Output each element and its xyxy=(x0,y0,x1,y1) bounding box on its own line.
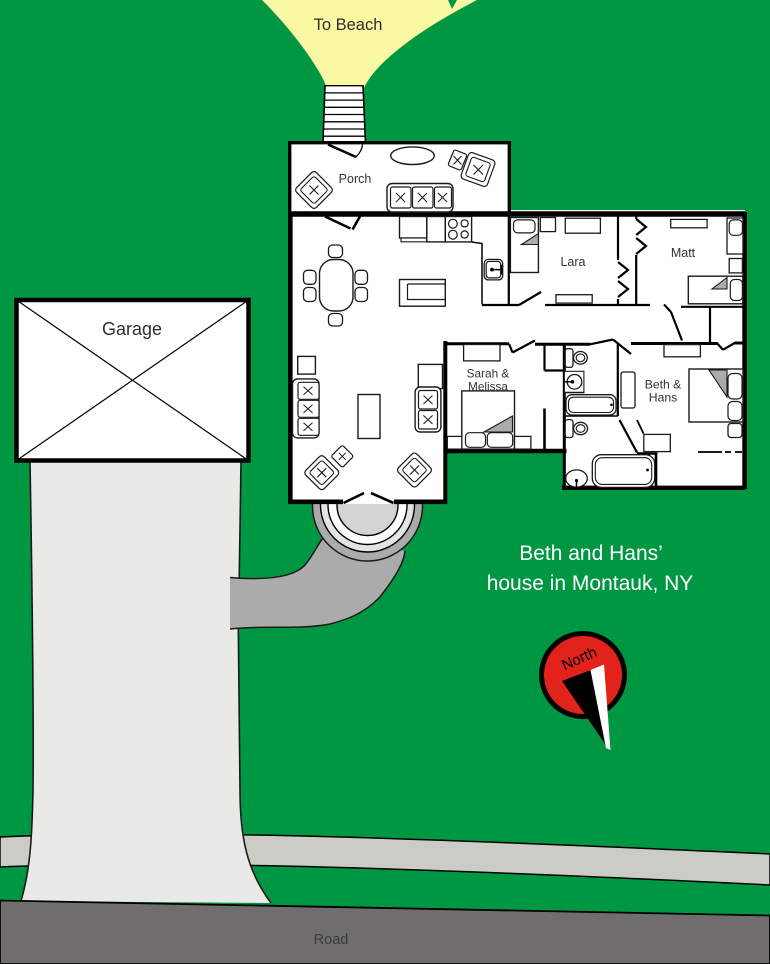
svg-text:Beth &: Beth & xyxy=(645,378,682,392)
svg-text:Porch: Porch xyxy=(339,172,372,186)
svg-text:Lara: Lara xyxy=(560,255,585,269)
svg-text:Road: Road xyxy=(314,932,349,948)
svg-text:Garage: Garage xyxy=(102,319,162,339)
svg-text:Hans: Hans xyxy=(649,391,677,405)
svg-text:To Beach: To Beach xyxy=(314,16,383,34)
svg-text:Beth and Hans’: Beth and Hans’ xyxy=(519,542,663,565)
svg-text:Matt: Matt xyxy=(671,246,696,260)
svg-text:Melissa: Melissa xyxy=(468,380,508,394)
svg-text:house in Montauk, NY: house in Montauk, NY xyxy=(487,572,694,595)
svg-text:Sarah &: Sarah & xyxy=(467,367,510,381)
